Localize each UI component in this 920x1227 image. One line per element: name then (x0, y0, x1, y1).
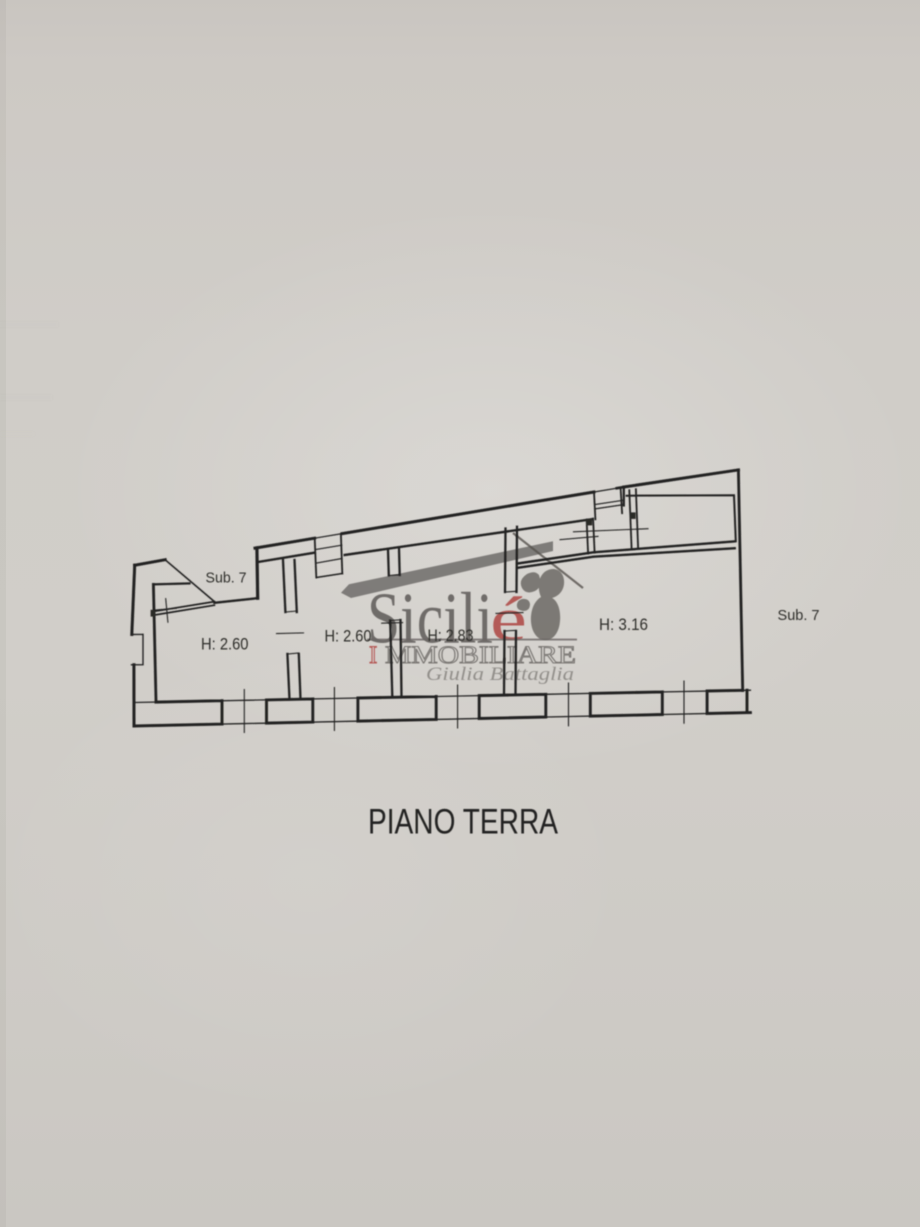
svg-text:Sub. 7: Sub. 7 (206, 570, 247, 586)
svg-text:Giulia Battaglia: Giulia Battaglia (426, 664, 574, 685)
svg-text:PIANO TERRA: PIANO TERRA (368, 803, 559, 842)
svg-text:H: 3.16: H: 3.16 (599, 615, 648, 634)
svg-text:H: 2.60: H: 2.60 (201, 635, 249, 654)
svg-text:Sub. 7: Sub. 7 (778, 608, 820, 624)
svg-text:H: 2.83: H: 2.83 (428, 626, 474, 645)
svg-text:I: I (369, 642, 377, 669)
svg-text:H: 2.60: H: 2.60 (325, 627, 372, 646)
